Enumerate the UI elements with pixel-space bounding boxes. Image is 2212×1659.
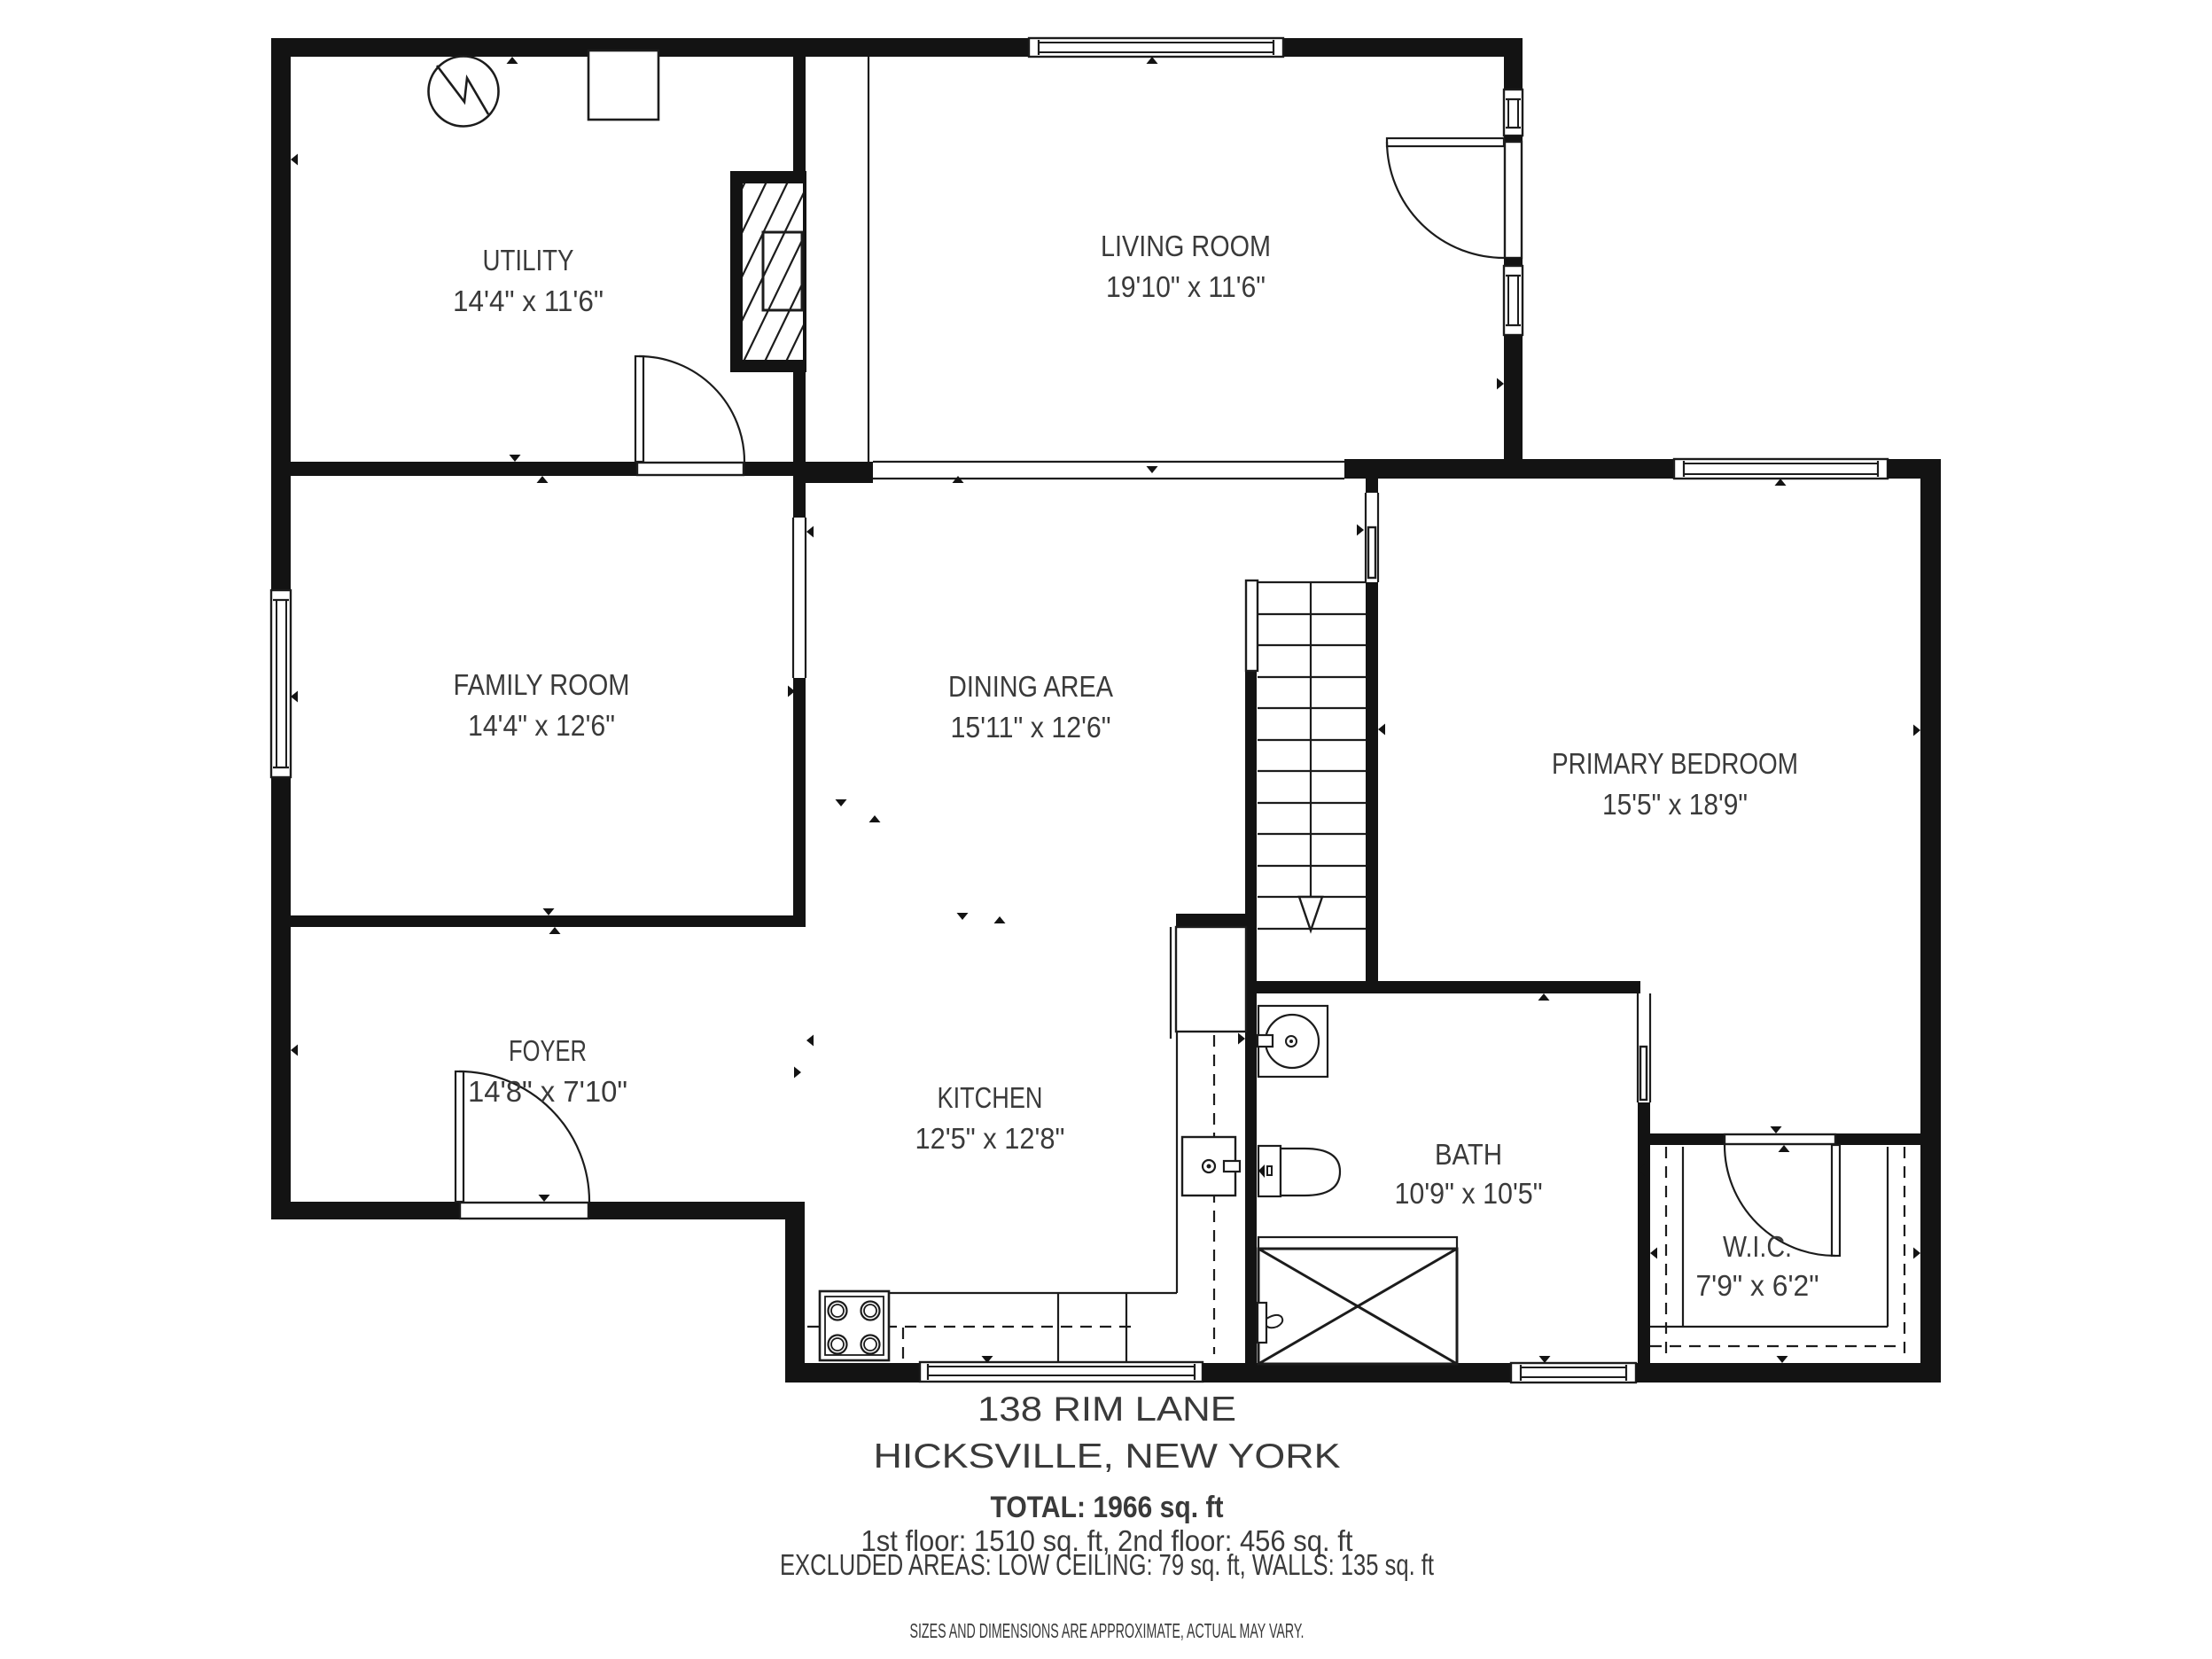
svg-text:19'10" x 11'6": 19'10" x 11'6" — [1106, 270, 1266, 303]
svg-text:15'5" x 18'9": 15'5" x 18'9" — [1602, 788, 1748, 821]
svg-text:10'9" x 10'5": 10'9" x 10'5" — [1395, 1177, 1543, 1210]
svg-text:EXCLUDED AREAS: LOW CEILING: 7: EXCLUDED AREAS: LOW CEILING: 79 sq. ft, … — [780, 1548, 1434, 1581]
svg-text:14'4" x 12'6": 14'4" x 12'6" — [468, 709, 615, 742]
svg-text:FAMILY ROOM: FAMILY ROOM — [454, 668, 630, 701]
svg-text:DINING AREA: DINING AREA — [948, 670, 1113, 703]
svg-text:14'4" x 11'6": 14'4" x 11'6" — [453, 284, 604, 317]
svg-text:HICKSVILLE, NEW YORK: HICKSVILLE, NEW YORK — [874, 1437, 1341, 1476]
svg-text:138 RIM LANE: 138 RIM LANE — [977, 1390, 1236, 1429]
svg-text:15'11" x 12'6": 15'11" x 12'6" — [951, 711, 1111, 744]
svg-text:W.I.C.: W.I.C. — [1723, 1230, 1792, 1263]
svg-text:12'5" x 12'8": 12'5" x 12'8" — [915, 1122, 1065, 1155]
svg-text:FOYER: FOYER — [509, 1034, 587, 1067]
svg-text:7'9" x 6'2": 7'9" x 6'2" — [1696, 1269, 1819, 1302]
svg-text:BATH: BATH — [1435, 1138, 1502, 1171]
svg-text:UTILITY: UTILITY — [483, 244, 574, 276]
svg-text:TOTAL: 1966 sq. ft: TOTAL: 1966 sq. ft — [991, 1491, 1224, 1524]
svg-text:PRIMARY BEDROOM: PRIMARY BEDROOM — [1552, 747, 1798, 780]
svg-text:LIVING ROOM: LIVING ROOM — [1101, 230, 1271, 262]
svg-text:14'8" x 7'10": 14'8" x 7'10" — [468, 1075, 627, 1108]
svg-text:KITCHEN: KITCHEN — [938, 1081, 1043, 1114]
svg-text:SIZES AND DIMENSIONS ARE APPRO: SIZES AND DIMENSIONS ARE APPROXIMATE, AC… — [910, 1619, 1305, 1642]
